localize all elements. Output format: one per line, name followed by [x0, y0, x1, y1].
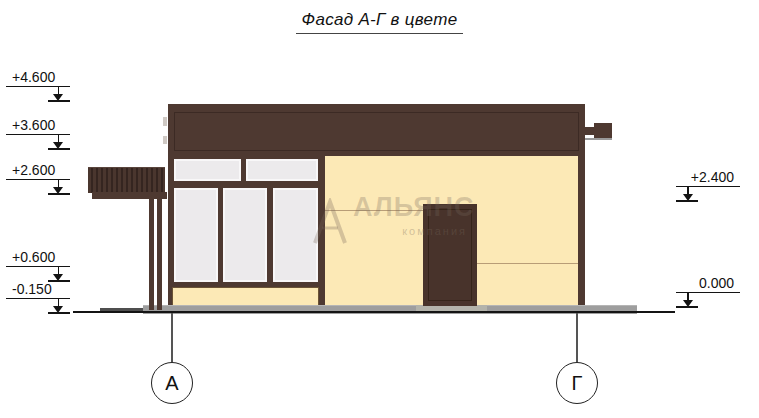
level-marker: +4.600 — [6, 69, 70, 87]
axis-label: А — [165, 372, 178, 395]
level-label: +2.400 — [676, 169, 740, 187]
axis-bubble: А — [151, 362, 193, 404]
facade-drawing: Фасад А-Г в цвете +4.600 +3.600 +2.600 +… — [0, 0, 759, 418]
level-label: +3.600 — [6, 117, 70, 135]
level-label: +0.600 — [6, 249, 70, 267]
window-pane — [174, 188, 218, 282]
elevation-tick — [48, 100, 70, 102]
roof-drain-pipe-shadow — [585, 138, 612, 140]
door-panel-outline — [428, 209, 472, 301]
elevation-tick — [48, 148, 70, 150]
roof-outline — [174, 112, 579, 151]
elevation-tick — [676, 306, 698, 308]
level-marker: +3.600 — [6, 117, 70, 135]
canopy-post — [157, 199, 162, 310]
wall-joint-line — [325, 210, 423, 211]
window-pane — [273, 188, 318, 282]
wall-joint-line — [477, 263, 578, 264]
axis-line — [171, 313, 173, 362]
elevation-tick — [48, 312, 70, 314]
ground-line — [73, 311, 675, 313]
roof-drain-pipe — [594, 123, 612, 138]
canopy-post — [149, 199, 154, 310]
level-marker: +2.400 — [676, 169, 740, 187]
entrance-canopy — [88, 167, 165, 193]
window-pane — [223, 188, 267, 282]
roof-parapet — [168, 104, 585, 156]
roof-edge-notch — [163, 117, 167, 126]
level-marker: +2.600 — [6, 162, 70, 180]
level-marker: +0.600 — [6, 249, 70, 267]
canopy-beam — [92, 192, 167, 199]
elevation-tick — [676, 200, 698, 202]
level-label: -0.150 — [6, 281, 70, 299]
level-marker: 0.000 — [676, 275, 740, 293]
transom-window — [246, 159, 318, 181]
level-label: +4.600 — [6, 69, 70, 87]
wall-corner-column — [578, 156, 585, 306]
level-label: 0.000 — [676, 275, 740, 293]
axis-line — [576, 313, 578, 362]
drawing-title: Фасад А-Г в цвете — [296, 10, 464, 34]
drawing-title-wrap: Фасад А-Г в цвете — [0, 10, 759, 34]
level-marker: -0.150 — [6, 281, 70, 299]
transom-window — [174, 159, 241, 181]
entrance-door — [423, 204, 477, 306]
level-label: +2.600 — [6, 162, 70, 180]
glazed-facade-section — [168, 156, 325, 308]
roof-edge-notch — [163, 136, 167, 144]
axis-bubble: Г — [556, 362, 598, 404]
elevation-tick — [48, 193, 70, 195]
axis-label: Г — [572, 372, 583, 395]
